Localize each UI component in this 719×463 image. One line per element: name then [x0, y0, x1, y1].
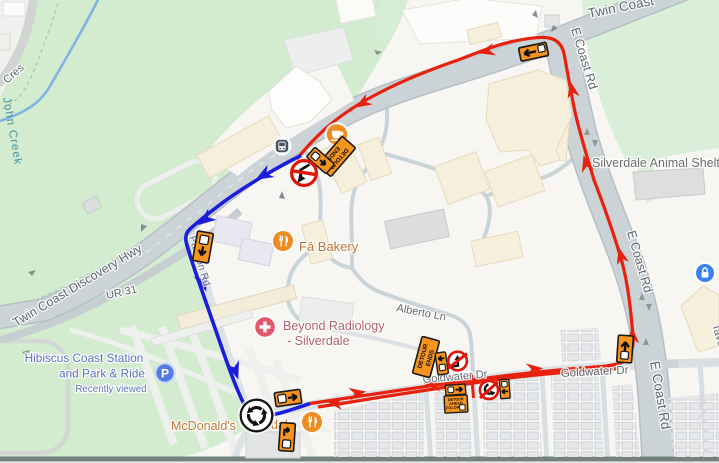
svg-text:Fā Bakery: Fā Bakery [299, 239, 359, 254]
svg-text:and Park & Ride: and Park & Ride [59, 367, 145, 381]
svg-text:Hibiscus Coast Station: Hibiscus Coast Station [25, 351, 144, 365]
svg-text:Recently viewed: Recently viewed [75, 384, 146, 395]
svg-text:Silverdale Animal Shelter: Silverdale Animal Shelter [592, 156, 719, 170]
svg-text:Beyond Radiology: Beyond Radiology [283, 319, 385, 333]
svg-text:FOLOW: FOLOW [446, 405, 461, 410]
svg-text:- Silverdale: - Silverdale [287, 334, 350, 348]
svg-text:P: P [161, 367, 169, 381]
svg-text:McDonald's: McDonald's [171, 419, 236, 433]
